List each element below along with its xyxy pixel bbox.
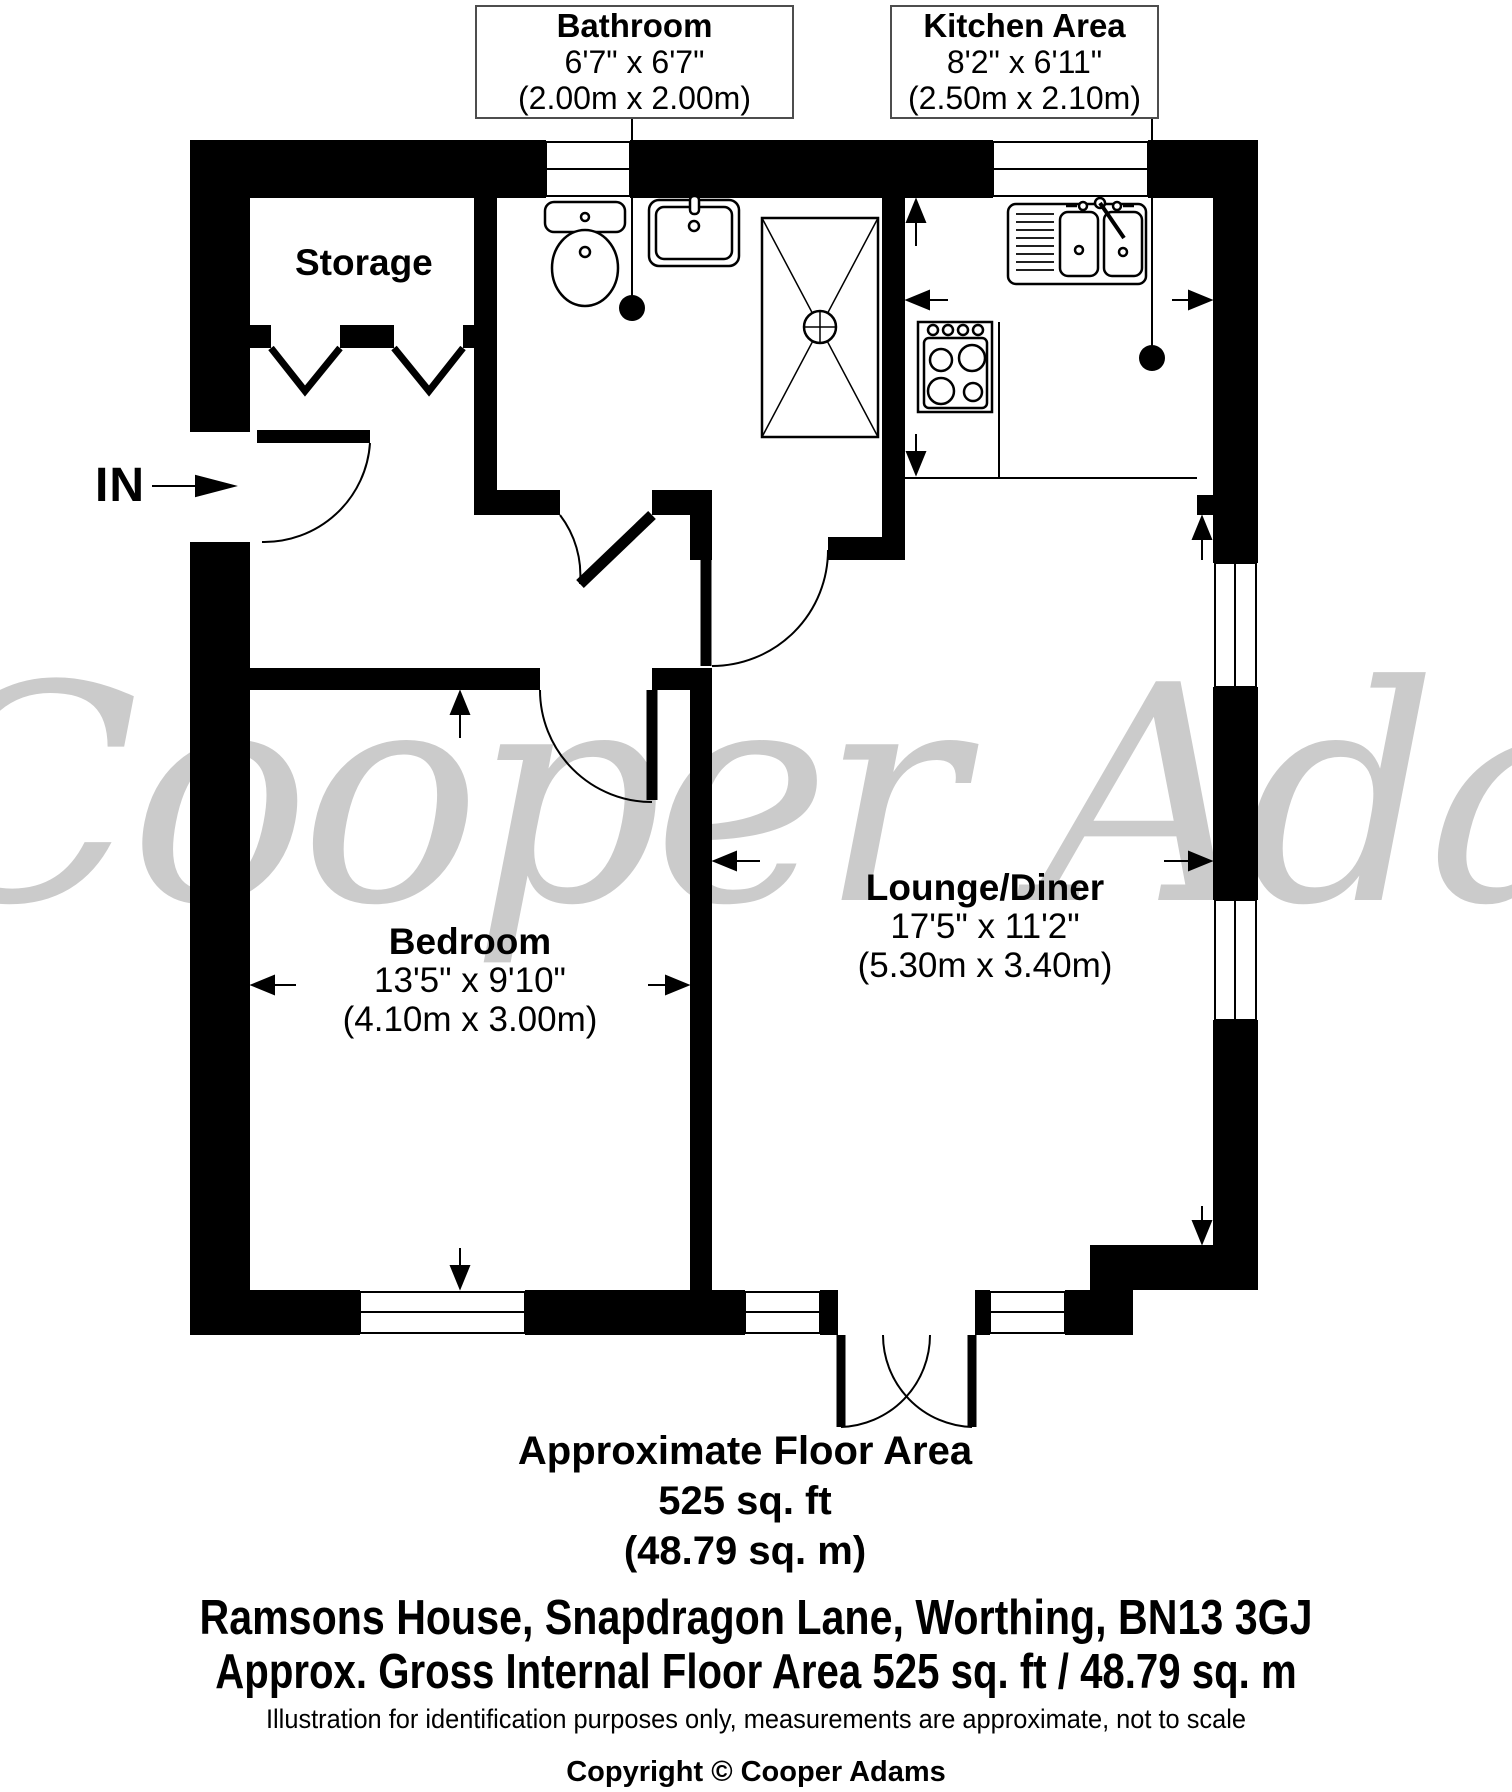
wall-segment <box>1065 1290 1133 1335</box>
kitchen-window <box>993 142 1148 196</box>
entrance-in-label: IN <box>95 458 145 513</box>
bathroom-door-leaf <box>580 515 652 584</box>
bathroom-size-imperial: 6'7" x 6'7" <box>477 44 792 80</box>
shower-icon <box>762 218 878 437</box>
wall-segment <box>975 1290 990 1335</box>
toilet-icon <box>545 202 625 306</box>
wall-segment <box>525 1290 745 1335</box>
kitchen-sink-icon <box>1008 198 1146 284</box>
wall-segment <box>690 490 712 560</box>
arrow-left-icon <box>252 976 274 994</box>
property-address: Ramsons House, Snapdragon Lane, Worthing… <box>121 1590 1391 1646</box>
kitchen-name: Kitchen Area <box>892 8 1157 44</box>
bathroom-label-box: Bathroom 6'7" x 6'7" (2.00m x 2.00m) <box>475 5 794 119</box>
bathroom-door-arc <box>560 515 580 584</box>
lounge-room-label: Lounge/Diner 17'5" x 11'2" (5.30m x 3.40… <box>810 868 1160 985</box>
entrance-door-arc <box>262 443 370 542</box>
french-door-arc-right <box>883 1335 972 1427</box>
wall-segment <box>340 325 394 348</box>
entrance-door-leaf <box>257 430 370 443</box>
bathroom-size-metric: (2.00m x 2.00m) <box>477 80 792 116</box>
bedroom-name: Bedroom <box>305 922 635 961</box>
wall-segment <box>690 668 712 1290</box>
lounge-name: Lounge/Diner <box>810 868 1160 907</box>
area-sqm: (48.79 sq. m) <box>445 1526 1045 1576</box>
arrow-down-icon <box>451 1266 469 1288</box>
wall-segment <box>1090 1245 1258 1290</box>
storage-room-label: Storage <box>295 242 433 284</box>
arrow-up-icon <box>907 200 925 222</box>
wall-segment <box>250 668 540 690</box>
wall-segment <box>1213 1020 1258 1245</box>
arrow-down-icon <box>1193 1221 1211 1243</box>
wall-segment <box>1213 687 1258 900</box>
storage-bifold-door <box>271 348 340 391</box>
kitchen-size-imperial: 8'2" x 6'11" <box>892 44 1157 80</box>
wall-segment <box>190 1290 360 1335</box>
gross-internal-area: Approx. Gross Internal Floor Area 525 sq… <box>136 1644 1376 1700</box>
area-title: Approximate Floor Area <box>445 1426 1045 1476</box>
approximate-floor-area-block: Approximate Floor Area 525 sq. ft (48.79… <box>445 1426 1045 1576</box>
wall-segment <box>463 325 474 348</box>
bedroom-size-metric: (4.10m x 3.00m) <box>305 1000 635 1039</box>
bedroom-room-label: Bedroom 13'5" x 9'10" (4.10m x 3.00m) <box>305 922 635 1039</box>
bedroom-window <box>360 1292 525 1333</box>
lounge-bottom-window-left <box>745 1292 820 1333</box>
copyright-text: Copyright © Cooper Adams <box>0 1756 1512 1789</box>
area-sqft: 525 sq. ft <box>445 1476 1045 1526</box>
disclaimer-text: Illustration for identification purposes… <box>45 1704 1466 1735</box>
bathroom-window <box>546 142 630 196</box>
wall-segment <box>474 198 497 515</box>
wall-segment <box>497 490 560 515</box>
wall-segment <box>250 325 271 348</box>
wall-segment <box>190 542 250 1290</box>
kitchen-size-metric: (2.50m x 2.10m) <box>892 80 1157 116</box>
arrow-left-icon <box>907 291 929 309</box>
kitchen-leader-dot <box>1139 345 1165 371</box>
wall-segment <box>820 1290 838 1335</box>
bathroom-leader-dot <box>619 295 645 321</box>
lounge-bottom-window-right <box>990 1292 1065 1333</box>
arrow-up-icon <box>1193 517 1211 539</box>
bathroom-name: Bathroom <box>477 8 792 44</box>
wall-segment <box>882 198 905 560</box>
lounge-size-metric: (5.30m x 3.40m) <box>810 946 1160 985</box>
storage-bifold-door <box>394 348 463 391</box>
hob-icon <box>918 322 992 412</box>
wash-basin-icon <box>649 196 739 266</box>
floorplan-page: Cooper Adams <box>0 0 1512 1792</box>
fixtures <box>545 196 1197 478</box>
wall-segment <box>630 140 993 198</box>
lounge-size-imperial: 17'5" x 11'2" <box>810 907 1160 946</box>
arrow-right-icon <box>1189 291 1211 309</box>
kitchen-label-box: Kitchen Area 8'2" x 6'11" (2.50m x 2.10m… <box>890 5 1159 119</box>
french-door-arc-left <box>841 1335 930 1427</box>
wall-segment <box>190 140 250 432</box>
arrow-right-icon <box>196 476 234 496</box>
bedroom-size-imperial: 13'5" x 9'10" <box>305 961 635 1000</box>
wall-segment <box>1197 495 1213 515</box>
arrow-right-icon <box>666 976 688 994</box>
arrow-down-icon <box>907 452 925 474</box>
wall-segment <box>1213 140 1258 563</box>
